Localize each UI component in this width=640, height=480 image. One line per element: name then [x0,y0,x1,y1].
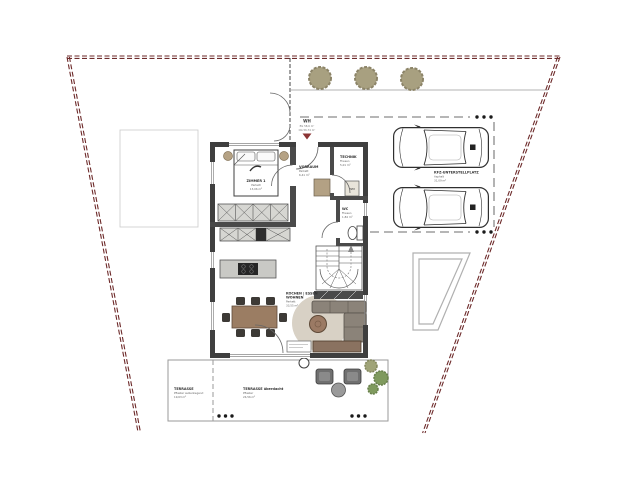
cooktop-icon [238,263,258,275]
dining-table-icon [232,306,277,328]
column-icon [299,358,309,368]
dot [482,230,485,233]
tree-icon [309,67,331,89]
bush-icon [374,371,388,385]
cabinet-box [287,341,311,352]
chair-icon [236,329,245,337]
toilet-icon [348,226,363,240]
carport-area-value: 31,09 m² [434,178,446,182]
chair-icon [236,297,245,305]
outdoor-table-icon [332,383,346,397]
car-icon [394,125,489,171]
kitchen-counter-icon [220,228,290,241]
terrace-covered-area-value: 24,56 m² [243,395,255,399]
wohnen-area: 33,55 m² [286,303,298,307]
wardrobe-icon [314,179,330,196]
dot [489,230,492,233]
dot [230,414,233,417]
dot [357,414,360,417]
trees [309,67,423,90]
nightstand-icon [280,152,289,161]
zimmer1-area: 13,06 m² [250,187,262,191]
kitchen-island-icon [220,260,276,278]
tree-icon [401,68,423,90]
car-icon [394,185,489,231]
dot [217,414,220,417]
chair-icon [251,297,260,305]
terrace-area: TERRASSE Pflaster außenliegend 19,63 m² … [168,358,388,421]
floor-plan-page: KFZ-UNTERSTELLPLATZ Asphalt 31,09 m² [0,0,640,480]
fireplace-icon [314,291,363,299]
house-marker-line1: EG 58,6 m² [300,124,315,128]
chair-icon [279,313,287,322]
dot [350,414,353,417]
house-marker-line2: OG 56,74 m² [299,128,316,132]
chair-icon [266,329,275,337]
pillow-icon [257,152,275,161]
terrace-area-value: 19,63 m² [174,395,186,399]
closet-icon [218,204,288,221]
sink-icon [256,228,266,241]
dot [489,115,492,118]
dot [475,230,478,233]
dot [482,115,485,118]
dot [224,414,227,417]
bush-icon [365,360,377,372]
technik-area: 5,01 m² [340,163,351,167]
floor-plan-drawing: KFZ-UNTERSTELLPLATZ Asphalt 31,09 m² [0,0,640,480]
nightstand-icon [224,152,233,161]
chair-icon [266,297,275,305]
chair-icon [251,329,260,337]
sideboard-icon [313,341,361,352]
house-marker-title: WH [303,119,311,124]
stairs-icon [316,245,362,290]
dot [475,115,478,118]
vorraum-area: 6,41 m² [299,173,310,177]
coffee-table-icon [310,316,327,333]
chair-cushion [319,372,330,381]
chair-cushion [347,372,358,381]
bush-icon [368,384,378,394]
tree-icon [355,67,377,89]
dot [363,414,366,417]
wc-area: 1,84 m² [342,215,353,219]
chair-icon [222,313,230,322]
